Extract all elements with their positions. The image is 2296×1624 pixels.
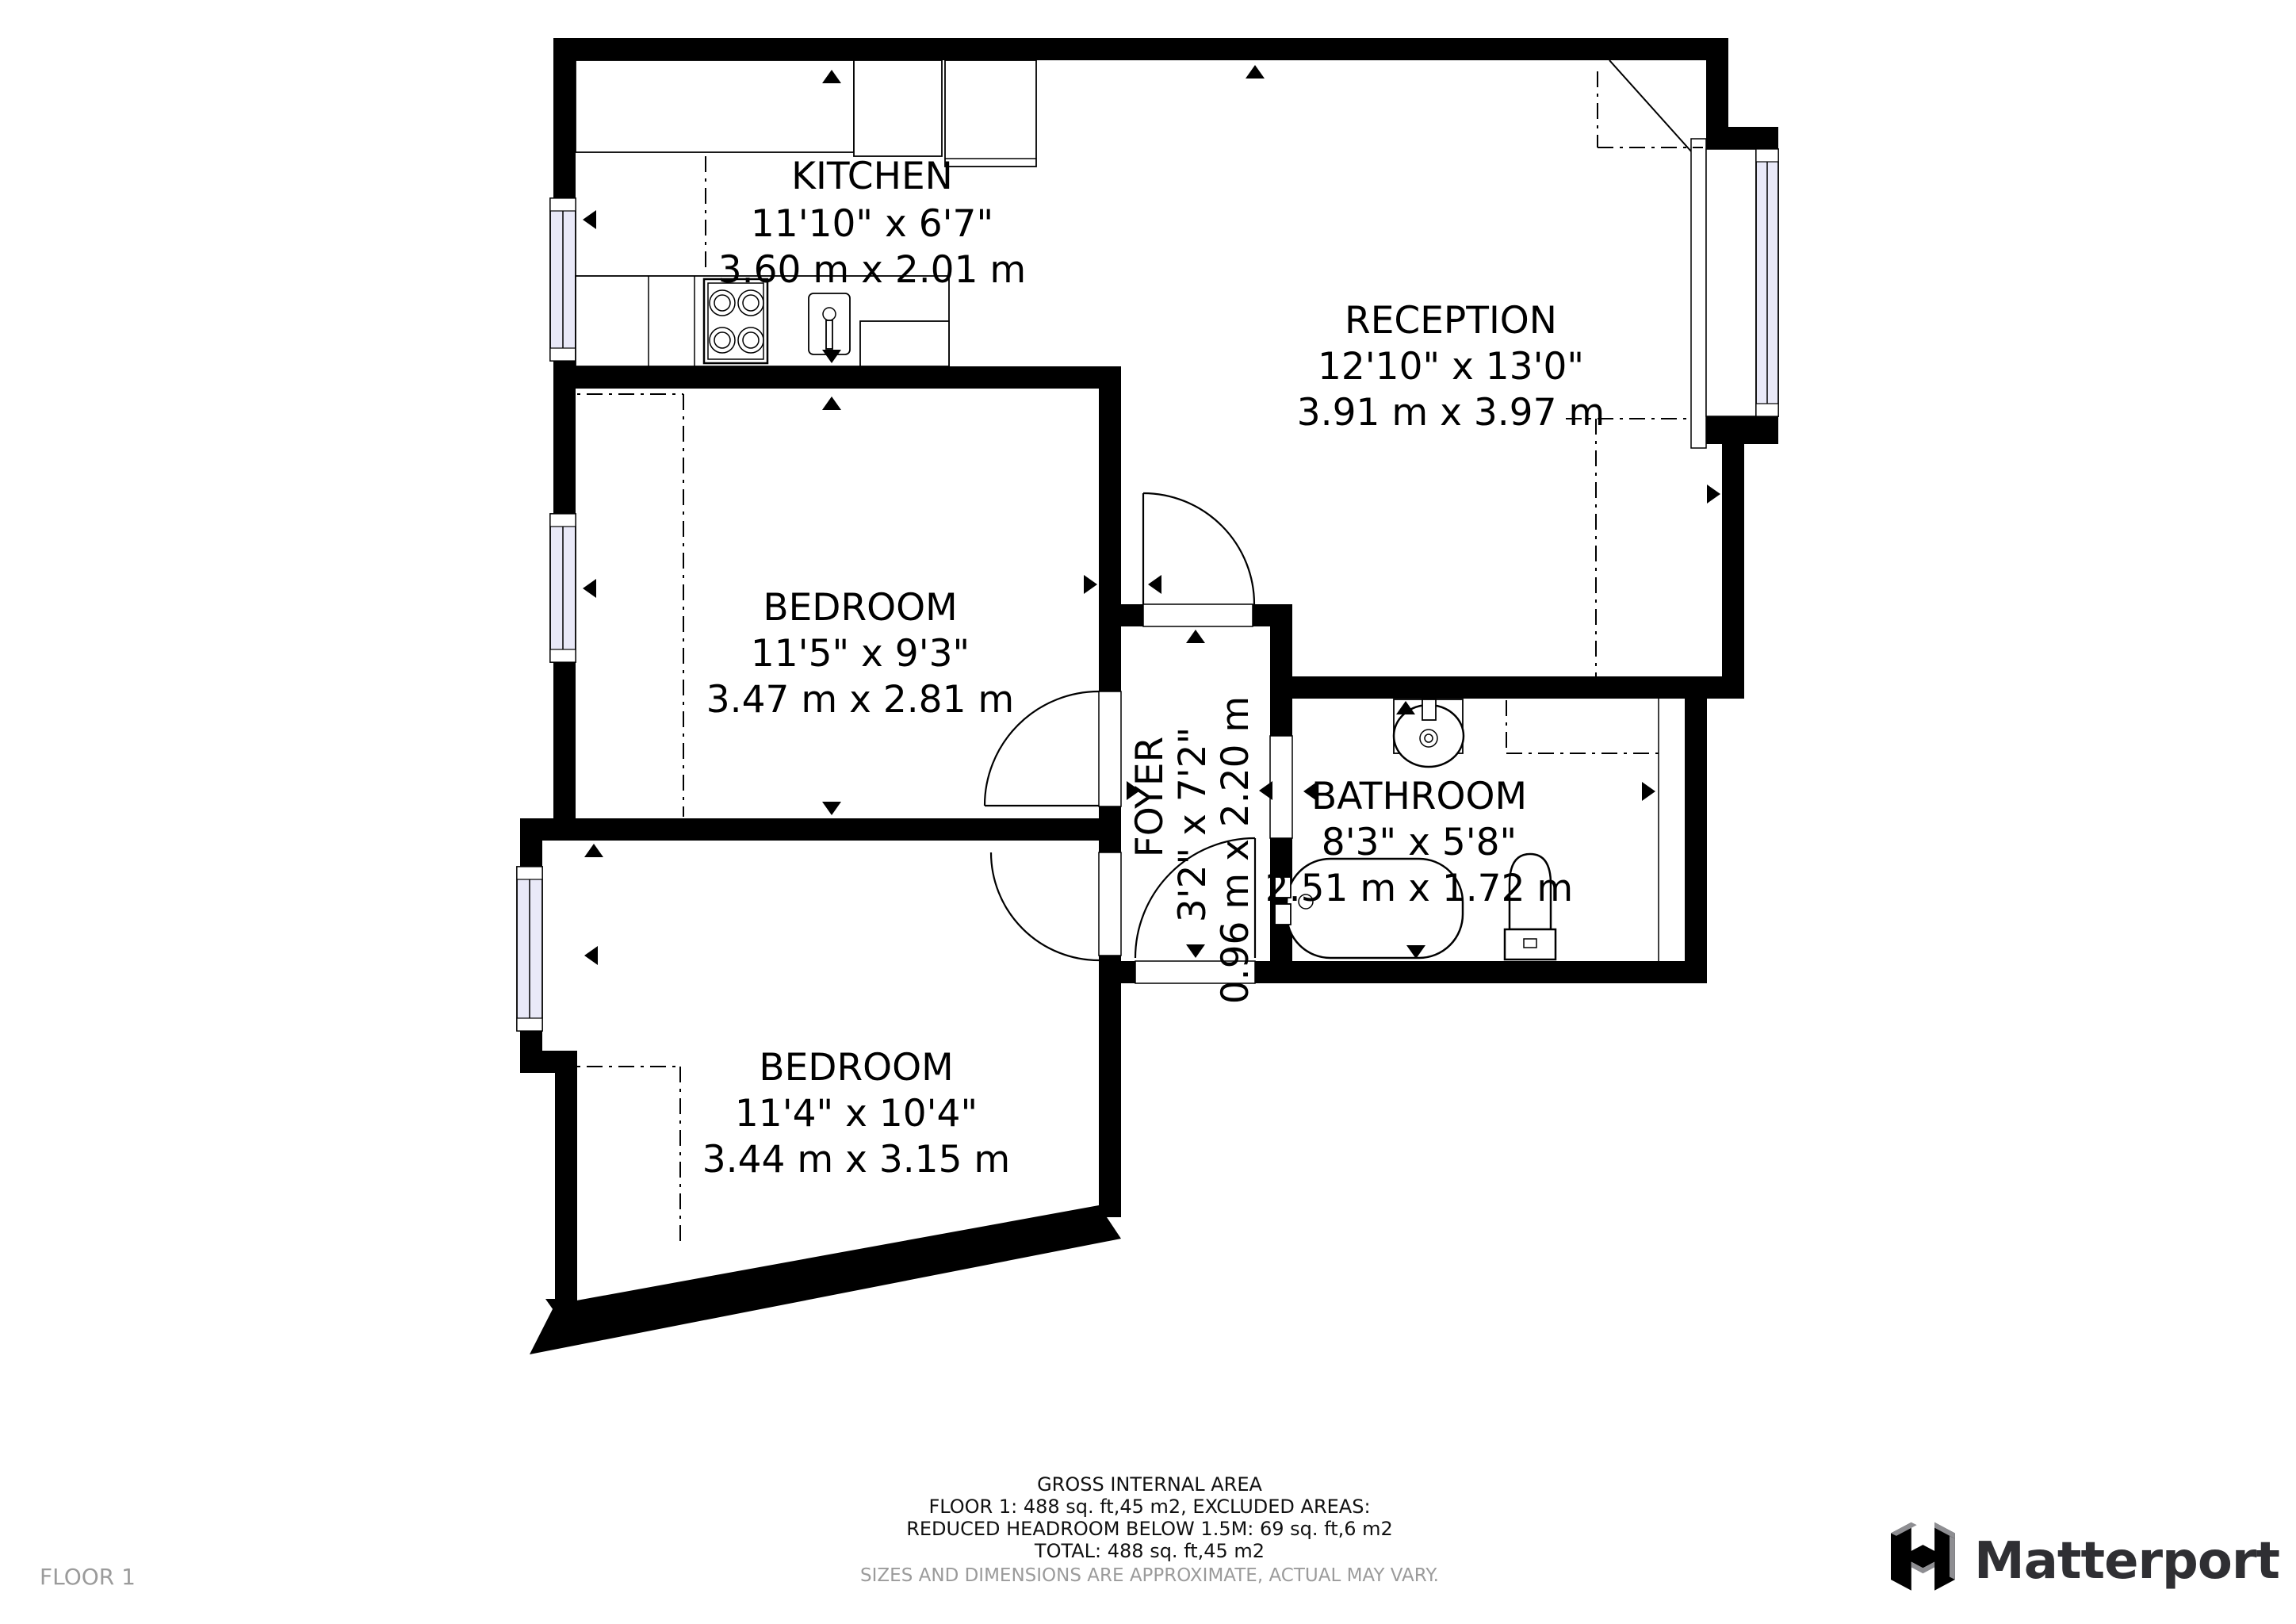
wall-bottom-slanted bbox=[530, 1205, 1121, 1354]
wall-bedroom2-right bbox=[1099, 956, 1121, 1217]
bathroom-door-opening bbox=[1270, 736, 1292, 838]
wall-reception-right bbox=[1722, 444, 1744, 699]
footer-gross-area: GROSS INTERNAL AREA bbox=[1037, 1473, 1262, 1496]
foyer-name: FOYER bbox=[1128, 737, 1172, 858]
reception-imperial: 12'10" x 13'0" bbox=[1318, 345, 1584, 389]
kitchen-counter-top bbox=[576, 60, 854, 152]
wall-bedroom1-bedroom2 bbox=[520, 818, 1121, 841]
wall-right-above-bay bbox=[1706, 60, 1728, 127]
bathroom-name: BATHROOM bbox=[1311, 775, 1527, 818]
bedroom2-imperial: 11'4" x 10'4" bbox=[735, 1092, 978, 1136]
bedroom1-imperial: 11'5" x 9'3" bbox=[751, 632, 970, 676]
brand-logo: Matterport bbox=[1891, 1522, 2279, 1591]
foyer-metric: 0.96 m x 2.20 m bbox=[1214, 696, 1257, 1004]
kitchen-imperial: 11'10" x 6'7" bbox=[751, 202, 993, 246]
wall-bedroom2-left-lower bbox=[555, 1073, 577, 1312]
wall-bedroom1-left-lower bbox=[553, 662, 576, 818]
room-label-bedroom2: BEDROOM 11'4" x 10'4" 3.44 m x 3.15 m bbox=[702, 1046, 1010, 1182]
kitchen-name: KITCHEN bbox=[791, 155, 953, 198]
reception-metric: 3.91 m x 3.97 m bbox=[1297, 391, 1605, 435]
reception-door bbox=[1143, 493, 1254, 626]
wall-bedroom1-right-lower bbox=[1099, 806, 1121, 852]
bedroom2-metric: 3.44 m x 3.15 m bbox=[702, 1138, 1010, 1182]
wall-foyer-right-upper bbox=[1270, 604, 1292, 736]
matterport-wordmark: Matterport bbox=[1974, 1532, 2279, 1591]
footer: GROSS INTERNAL AREA FLOOR 1: 488 sq. ft,… bbox=[860, 1473, 1439, 1586]
wall-bay-bottom bbox=[1702, 416, 1778, 444]
footer-total: TOTAL: 488 sq. ft,45 m2 bbox=[1034, 1540, 1265, 1562]
footer-reduced-headroom: REDUCED HEADROOM BELOW 1.5M: 69 sq. ft,6… bbox=[906, 1518, 1393, 1540]
kitchen-appliance bbox=[860, 321, 949, 366]
bedroom2-window-icon bbox=[517, 867, 542, 1031]
room-label-bathroom: BATHROOM 8'3" x 5'8" 2.51 m x 1.72 m bbox=[1265, 775, 1573, 910]
bathroom-metric: 2.51 m x 1.72 m bbox=[1265, 867, 1573, 910]
reception-bay-window-icon bbox=[1691, 139, 1778, 448]
wall-bedroom1-left-upper bbox=[553, 389, 576, 514]
bedroom1-window-icon bbox=[550, 514, 576, 662]
bedroom1-name: BEDROOM bbox=[763, 586, 957, 630]
wall-bathroom-right bbox=[1685, 699, 1707, 961]
room-label-kitchen: KITCHEN 11'10" x 6'7" 3.60 m x 2.01 m bbox=[718, 155, 1026, 292]
room-label-bedroom1: BEDROOM 11'5" x 9'3" 3.47 m x 2.81 m bbox=[706, 586, 1014, 722]
floorplan-page: KITCHEN 11'10" x 6'7" 3.60 m x 2.01 m RE… bbox=[0, 0, 2296, 1624]
wall-bedroom1-right-upper bbox=[1099, 389, 1121, 691]
floor-label: FLOOR 1 bbox=[40, 1564, 136, 1590]
kitchen-metric: 3.60 m x 2.01 m bbox=[718, 248, 1026, 292]
kitchen-unit-1 bbox=[854, 60, 942, 156]
wall-foyer-bottom-left-jamb bbox=[1121, 961, 1135, 983]
wall-bay-top bbox=[1706, 127, 1778, 149]
bedroom2-door bbox=[991, 852, 1121, 960]
wall-foyer-top-left-jamb bbox=[1121, 604, 1143, 626]
bedroom2-name: BEDROOM bbox=[759, 1046, 953, 1090]
kitchen-window-icon bbox=[550, 198, 576, 361]
kitchen-unit-2 bbox=[945, 60, 1036, 167]
wall-bedroom2-left-upper bbox=[520, 841, 542, 867]
room-label-reception: RECEPTION 12'10" x 13'0" 3.91 m x 3.97 m bbox=[1297, 299, 1605, 435]
bedroom1-metric: 3.47 m x 2.81 m bbox=[706, 678, 1014, 722]
matterport-m-icon bbox=[1891, 1522, 1955, 1591]
bathroom-imperial: 8'3" x 5'8" bbox=[1322, 821, 1517, 864]
wall-kitchen-left bbox=[553, 60, 576, 198]
wall-bedroom2-jog bbox=[520, 1051, 577, 1073]
reception-name: RECEPTION bbox=[1345, 299, 1557, 343]
windows bbox=[517, 139, 1778, 1031]
wall-kitchen-bedroom1 bbox=[553, 366, 1121, 389]
kitchen-sink-icon bbox=[809, 293, 850, 354]
floorplan-canvas: KITCHEN 11'10" x 6'7" 3.60 m x 2.01 m RE… bbox=[0, 0, 2296, 1624]
wall-bathroom-bottom bbox=[1255, 961, 1707, 983]
room-label-foyer: FOYER 3'2" x 7'2" 0.96 m x 2.20 m bbox=[1128, 696, 1257, 1004]
wall-foyer-top-right-jamb bbox=[1253, 604, 1270, 626]
wall-bedroom2-left-mid bbox=[520, 1031, 542, 1051]
foyer-imperial: 3'2" x 7'2" bbox=[1171, 727, 1215, 922]
wall-top bbox=[553, 38, 1728, 60]
footer-disclaimer: SIZES AND DIMENSIONS ARE APPROXIMATE, AC… bbox=[860, 1565, 1439, 1586]
wall-bathroom-top bbox=[1292, 676, 1744, 699]
footer-floor1: FLOOR 1: 488 sq. ft,45 m2, EXCLUDED AREA… bbox=[928, 1496, 1370, 1518]
